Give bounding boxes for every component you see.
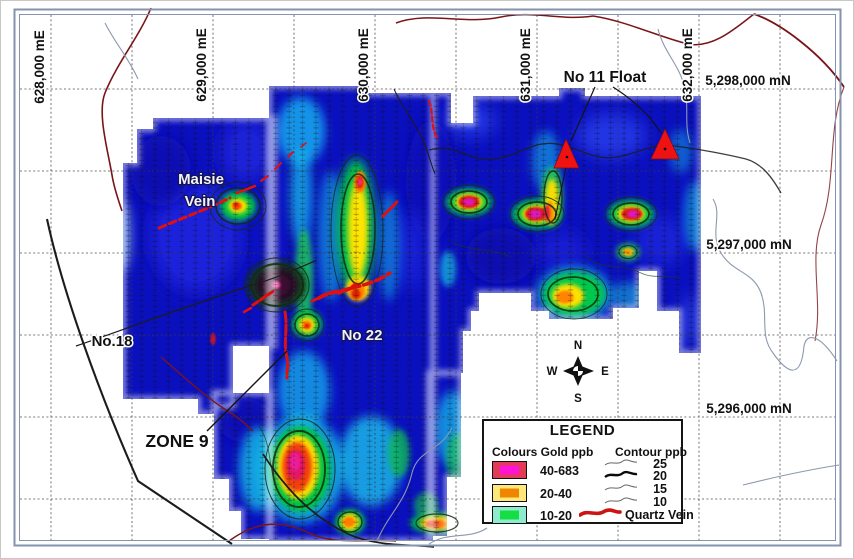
easting-label: 631,000 mE (518, 28, 533, 102)
contour-line-icon (604, 469, 638, 481)
geochemical-map-screenshot: 628,000 mE 629,000 mE 630,000 mE 631,000… (0, 0, 854, 559)
contour-level-value: 10 (641, 495, 667, 509)
gold-soil-geochemistry-map: 628,000 mE 629,000 mE 630,000 mE 631,000… (1, 1, 854, 559)
colour-swatch-icon (492, 461, 527, 479)
compass-s-label: S (574, 393, 582, 405)
contour-line-icon (604, 482, 638, 494)
float-marker-dot (664, 148, 667, 151)
quartz-vein-label: Quartz Vein (625, 508, 694, 522)
legend-colours-header: Colours Gold ppb (492, 445, 593, 459)
legend: LEGEND Colours Gold ppb Contour ppb 40-6… (482, 419, 683, 524)
legend-title: LEGEND (484, 422, 681, 439)
easting-label: 630,000 mE (356, 28, 371, 102)
colour-swatch-icon (492, 484, 527, 502)
quartz-vein-icon (579, 507, 622, 520)
colour-swatch-icon (492, 506, 527, 524)
contour-level-value: 15 (641, 482, 667, 496)
easting-label: 629,000 mE (194, 28, 209, 102)
easting-label: 632,000 mE (680, 28, 695, 102)
northing-label: 5,298,000 mN (705, 73, 791, 88)
compass-e-label: E (601, 366, 609, 378)
compass-rose-icon: N E S W (547, 340, 610, 405)
no22-label: No 22 (342, 327, 383, 344)
zone9-label: ZONE 9 (145, 431, 208, 451)
no11-float-label: No 11 Float (564, 69, 647, 86)
contour-line-icon (604, 495, 638, 507)
compass-w-label: W (547, 366, 558, 378)
maisie-vein-label-line2: Vein (185, 193, 216, 210)
float-marker-dot (566, 156, 569, 159)
maisie-vein-label-line1: Maisie (178, 171, 224, 188)
legend-class-range: 20-40 (540, 487, 572, 501)
compass-n-label: N (574, 340, 582, 352)
northing-label: 5,296,000 mN (706, 401, 792, 416)
no18-label: No.18 (92, 333, 133, 350)
contour-line-icon (604, 457, 638, 469)
northing-label: 5,297,000 mN (706, 237, 792, 252)
legend-class-range: 40-683 (540, 464, 579, 478)
legend-class-range: 10-20 (540, 509, 572, 523)
contour-level-value: 20 (641, 469, 667, 483)
easting-label: 628,000 mE (32, 30, 47, 104)
